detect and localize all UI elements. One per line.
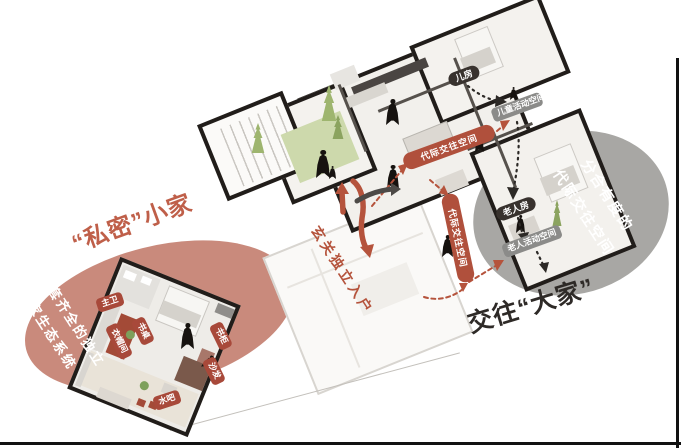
- page-border-right: [676, 58, 679, 448]
- gray-arrowhead: [391, 183, 401, 196]
- page-border-bottom: [0, 442, 681, 445]
- diagram-canvas: 主卫 衣帽间 书桌 书柜 沙发 水吧 儿房 儿童活动空间 老人房 老人活动空间 …: [0, 0, 681, 448]
